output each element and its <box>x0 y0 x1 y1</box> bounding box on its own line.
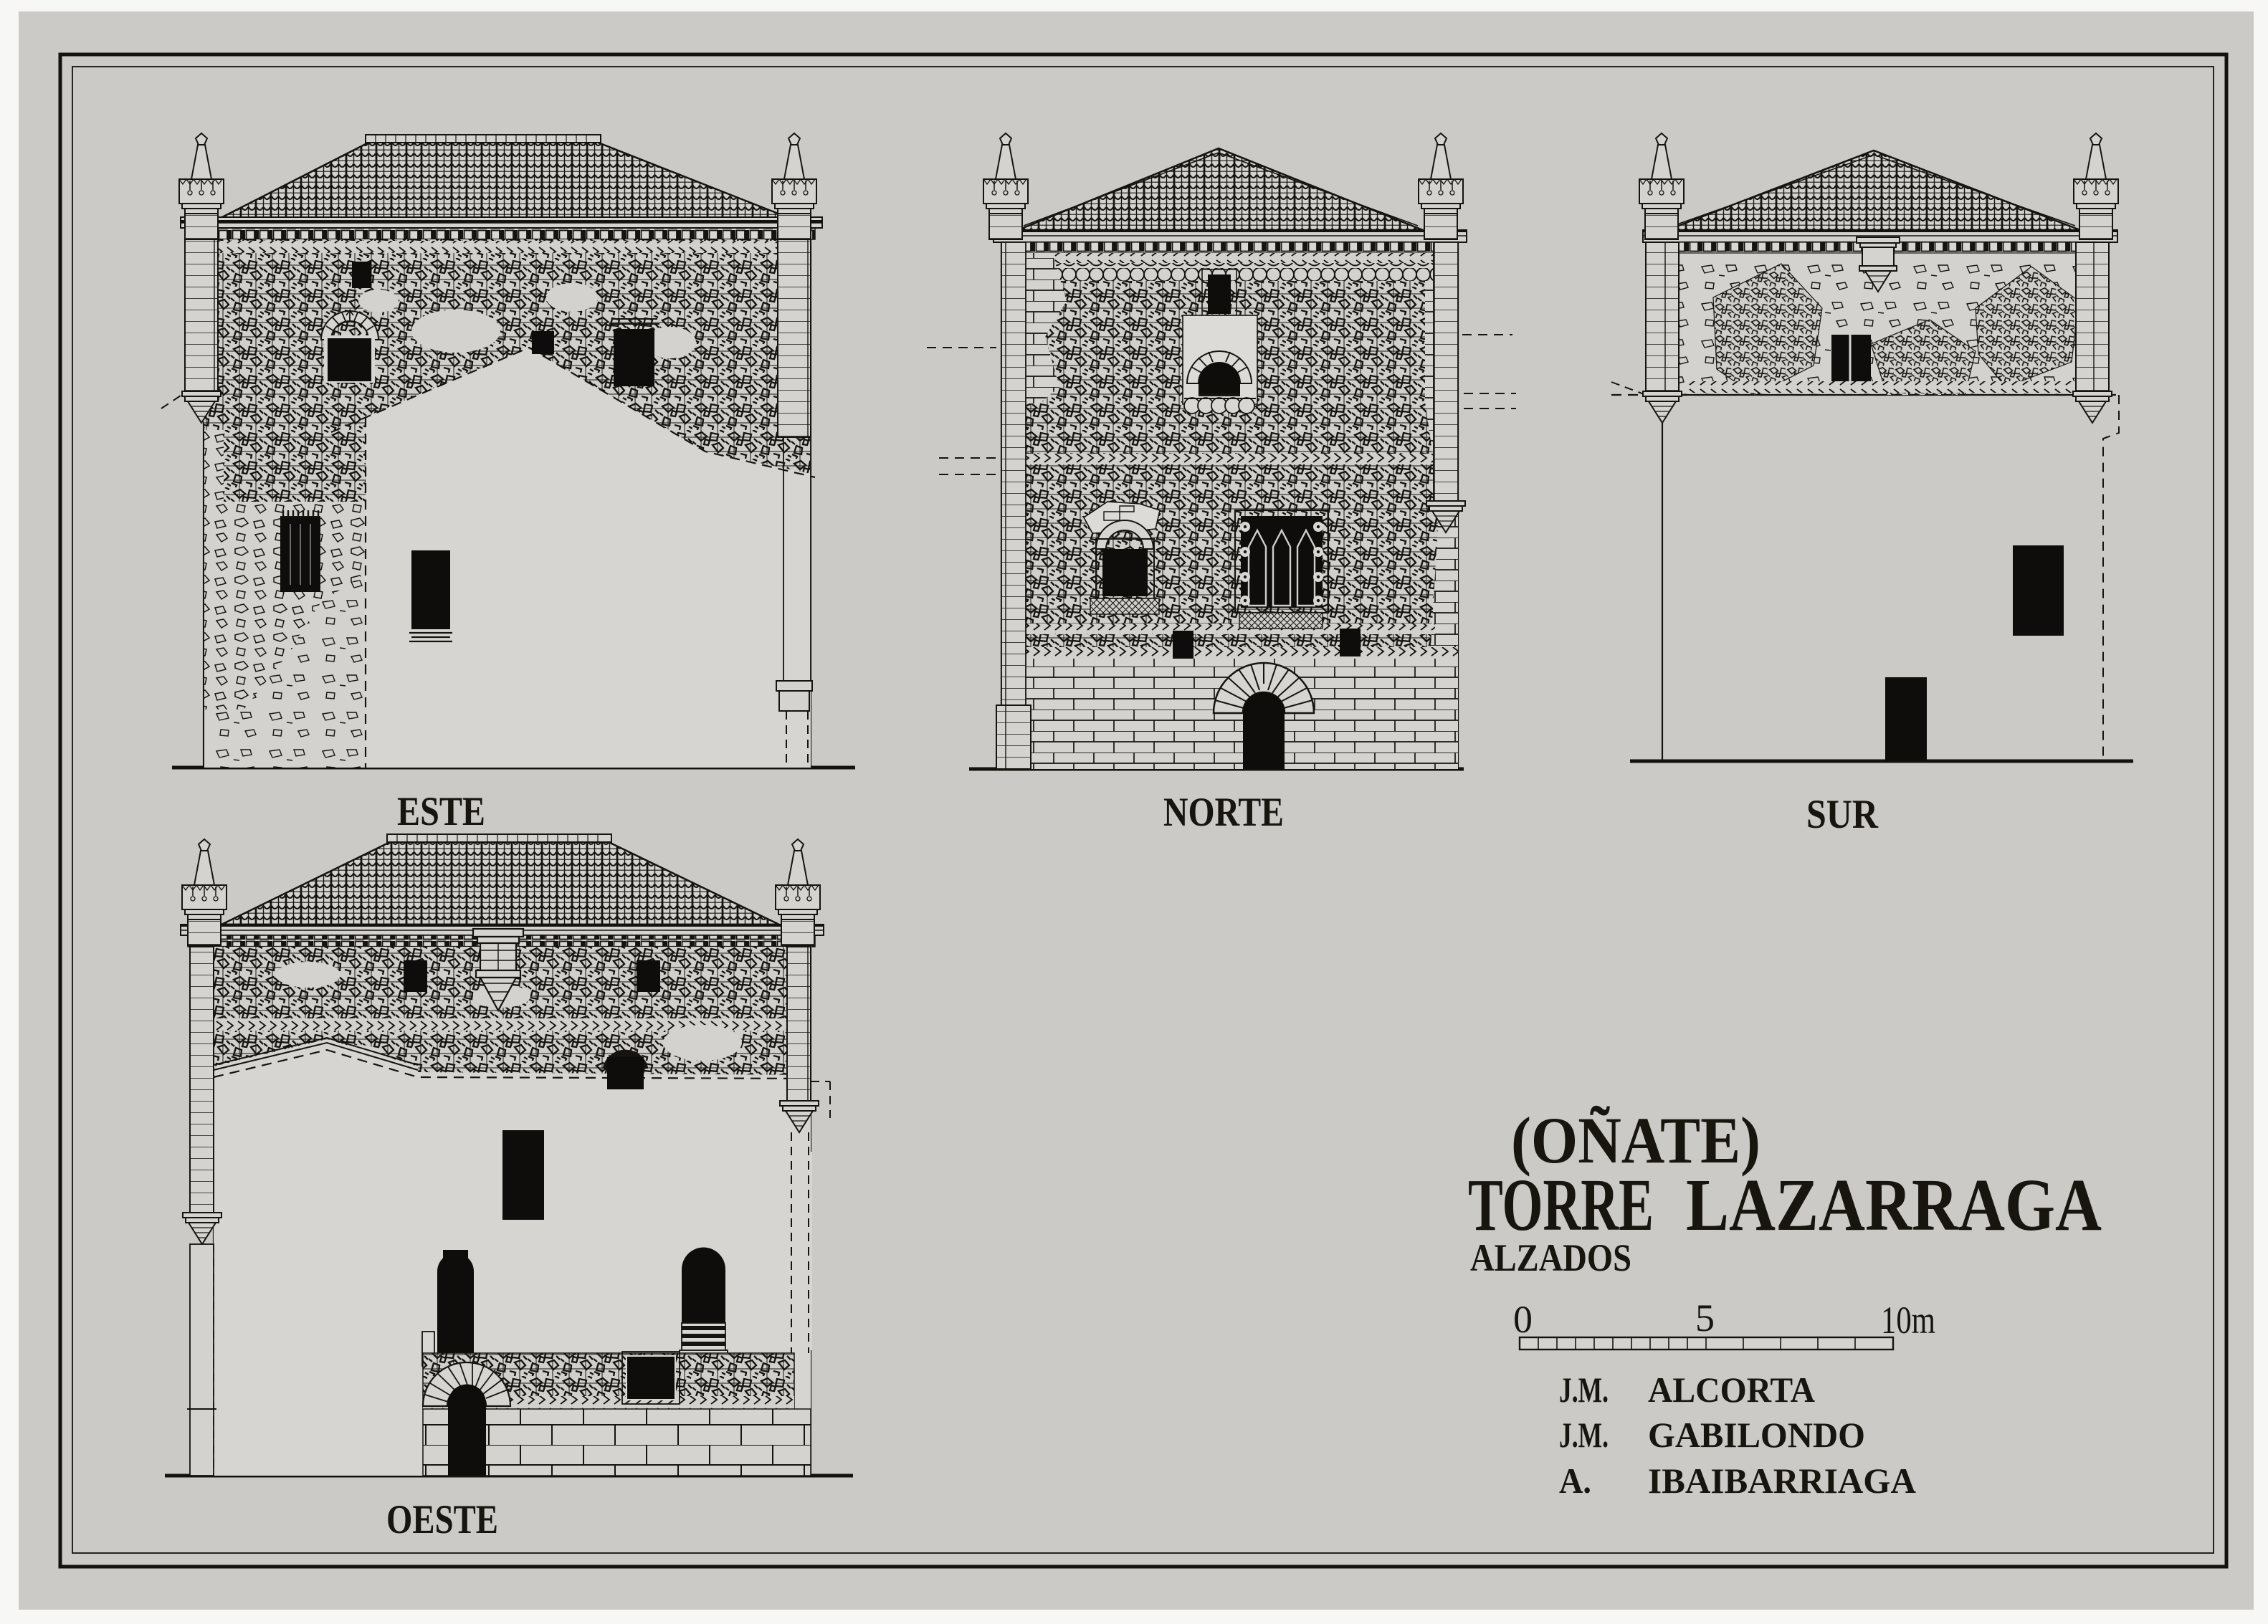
svg-text:ALZADOS: ALZADOS <box>1470 1236 1631 1279</box>
svg-text:0: 0 <box>1513 1298 1533 1341</box>
svg-text:5: 5 <box>1695 1296 1715 1339</box>
svg-text:IBAIBARRIAGA: IBAIBARRIAGA <box>1648 1461 1916 1501</box>
svg-text:A.: A. <box>1559 1461 1591 1501</box>
svg-text:ESTE: ESTE <box>397 789 485 834</box>
svg-text:ALCORTA: ALCORTA <box>1648 1370 1815 1410</box>
svg-text:OESTE: OESTE <box>386 1497 498 1542</box>
svg-text:SUR: SUR <box>1806 792 1879 837</box>
svg-text:J.M.: J.M. <box>1559 1415 1609 1455</box>
svg-text:GABILONDO: GABILONDO <box>1648 1415 1865 1455</box>
svg-text:NORTE: NORTE <box>1163 790 1284 835</box>
svg-text:TORRE: TORRE <box>1468 1164 1654 1246</box>
svg-text:J.M.: J.M. <box>1559 1370 1609 1410</box>
svg-text:10m: 10m <box>1881 1299 1935 1342</box>
svg-text:LAZARRAGA: LAZARRAGA <box>1686 1164 2102 1246</box>
